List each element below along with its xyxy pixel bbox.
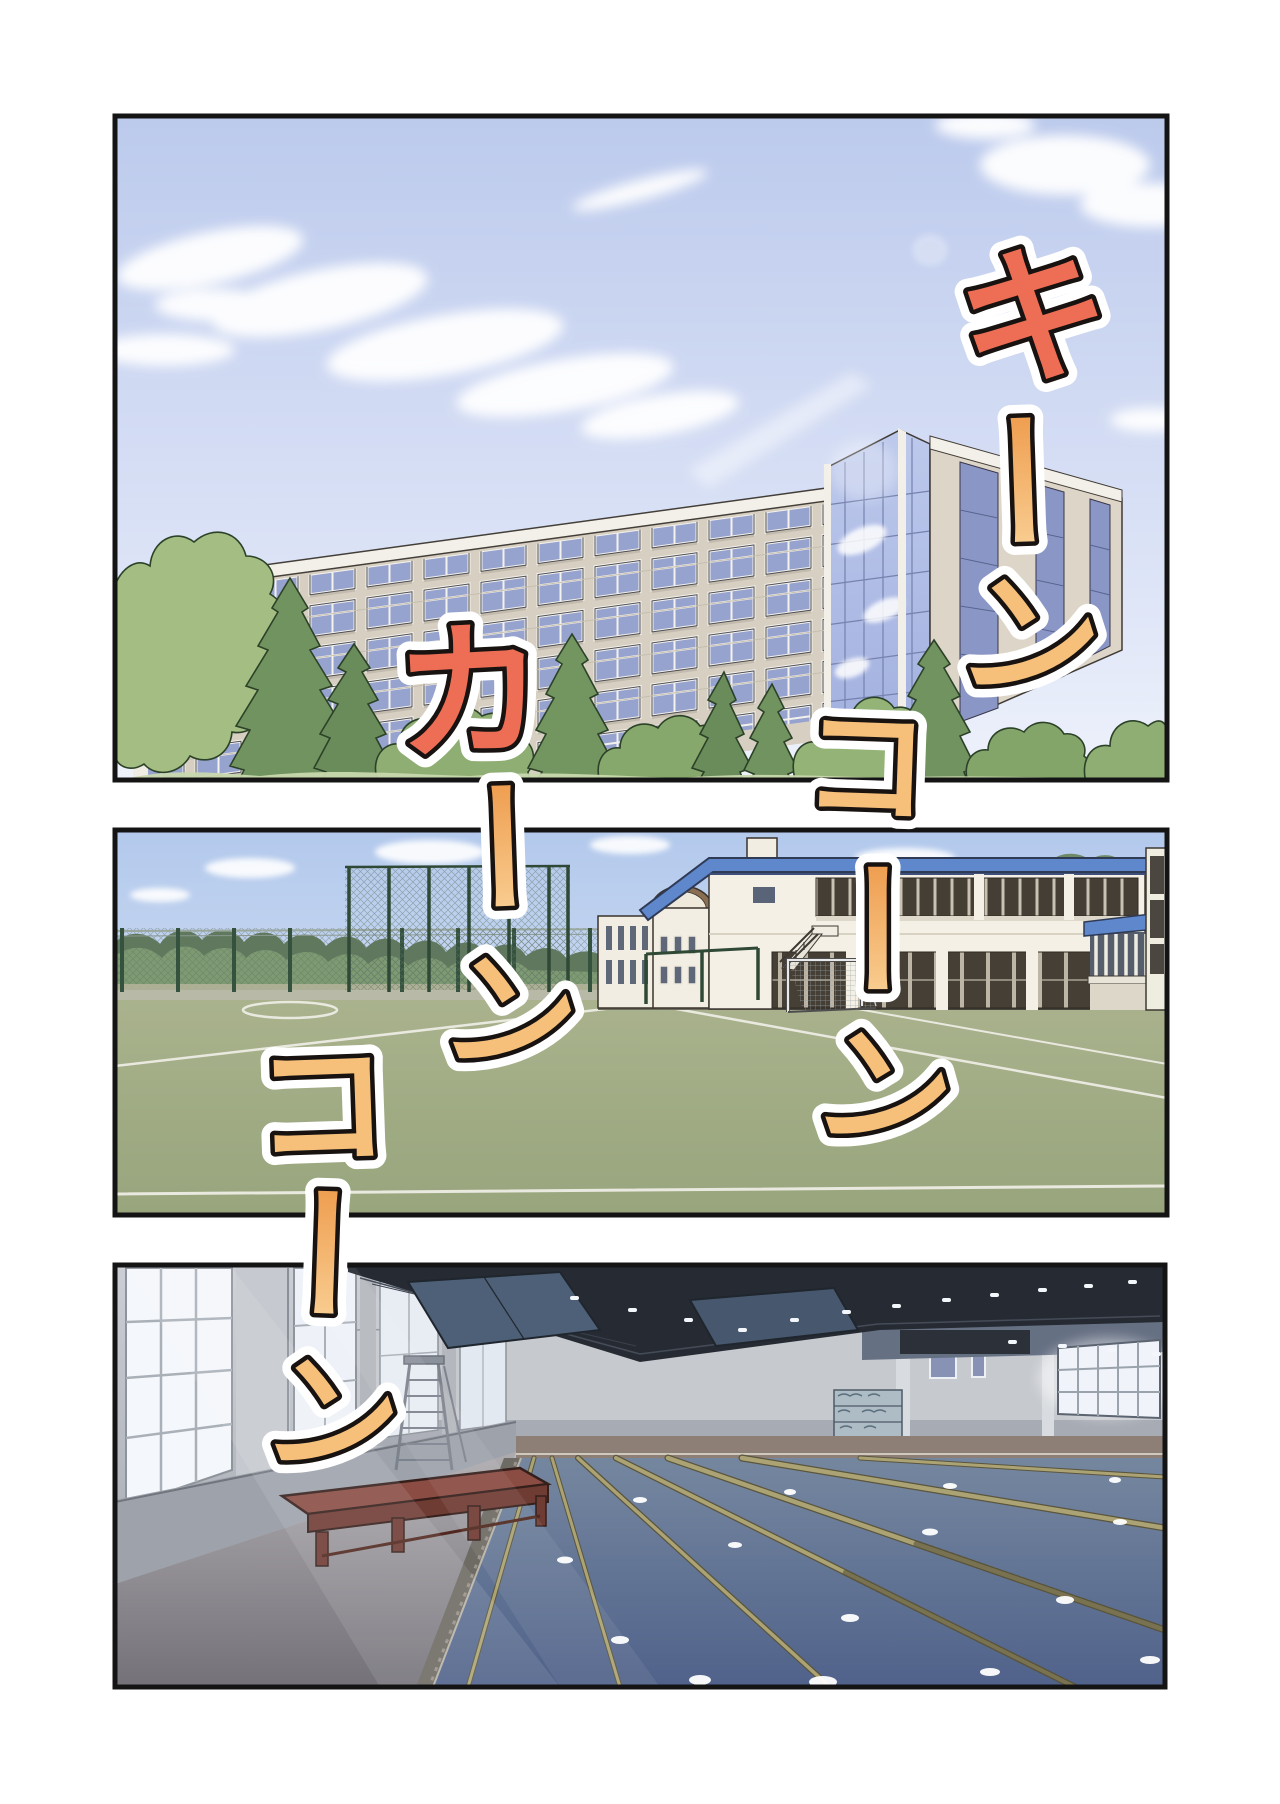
sky-glow [912, 234, 948, 266]
far-right-building [1146, 848, 1167, 1010]
kickboard-shelf [834, 1390, 902, 1440]
sfx-char: コ [799, 691, 932, 844]
sfx-char: ー [786, 854, 958, 1002]
sfx-char: コ [251, 1027, 392, 1190]
sfx-char: ー [926, 402, 1105, 558]
sun-glow [830, 440, 898, 500]
sfx-char: ー [231, 1175, 408, 1329]
small-window [752, 886, 776, 904]
manga-page: キ キ ー ー ン ン コ コ ー ー ン ン カ カ ー ー ン ン コ コ … [0, 0, 1280, 1804]
sfx-kiin: キ キ ー ー ン ン [926, 220, 1121, 735]
sfx-char: キ [946, 220, 1121, 416]
comic-artwork: キ キ ー ー ン ン コ コ ー ー ン ン カ カ ー ー ン ン コ コ … [0, 0, 1280, 1804]
sfx-char: カ [391, 603, 550, 785]
sfx-char: ー [410, 770, 585, 922]
roof-box [747, 838, 777, 860]
